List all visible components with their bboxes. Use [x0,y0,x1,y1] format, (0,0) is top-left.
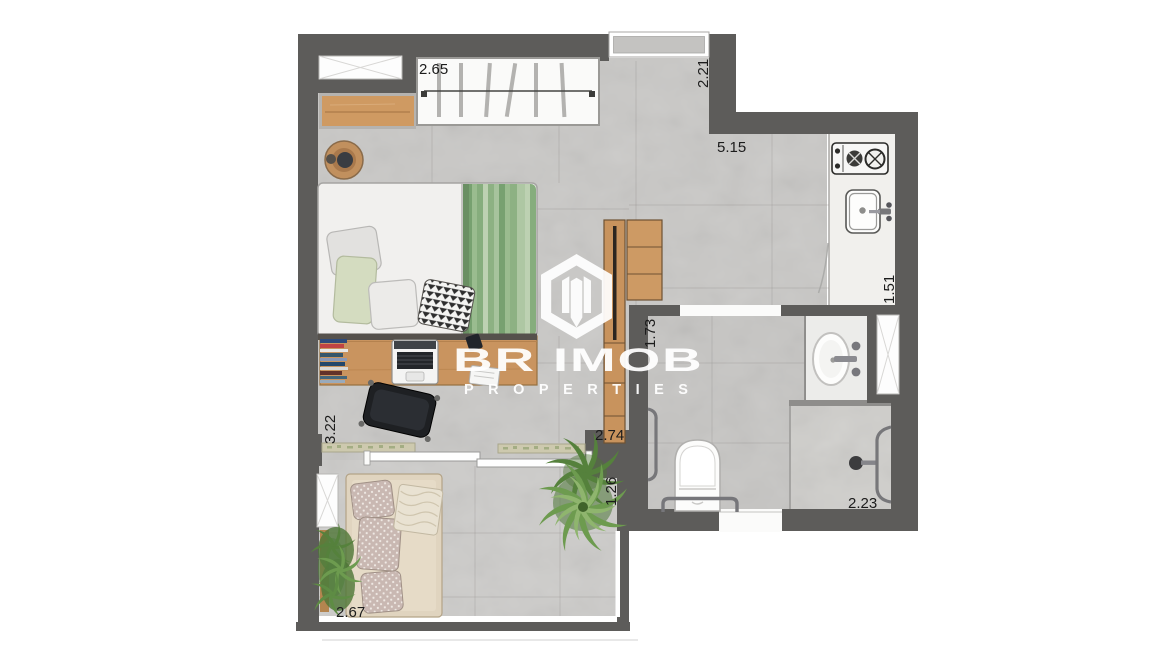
svg-text:BR IMOB: BR IMOB [453,342,703,378]
svg-text:2.67: 2.67 [336,604,365,621]
svg-text:1.26: 1.26 [603,477,620,506]
svg-text:3.22: 3.22 [322,415,339,444]
svg-text:2.74: 2.74 [595,427,624,444]
svg-text:5.15: 5.15 [717,139,746,156]
svg-text:2.23: 2.23 [848,495,877,512]
svg-text:2.21: 2.21 [695,59,712,88]
svg-text:1.51: 1.51 [881,275,898,304]
svg-text:2.65: 2.65 [419,61,448,78]
svg-text:PROPERTIES: PROPERTIES [464,382,702,398]
